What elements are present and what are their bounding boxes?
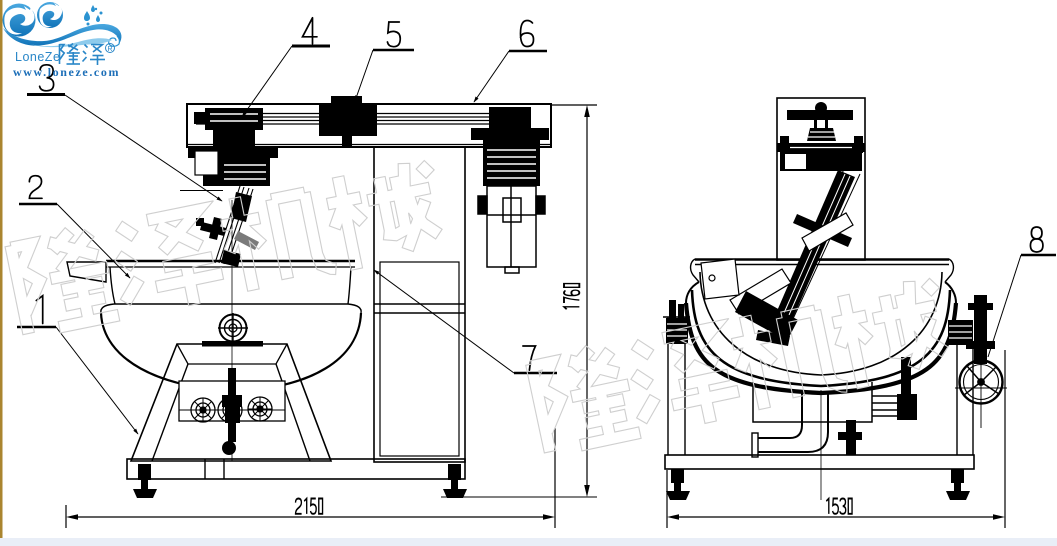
svg-text:www.loneze.com: www.loneze.com xyxy=(13,65,120,79)
svg-text:LoneZe: LoneZe xyxy=(15,50,60,64)
svg-text:R: R xyxy=(107,46,112,53)
